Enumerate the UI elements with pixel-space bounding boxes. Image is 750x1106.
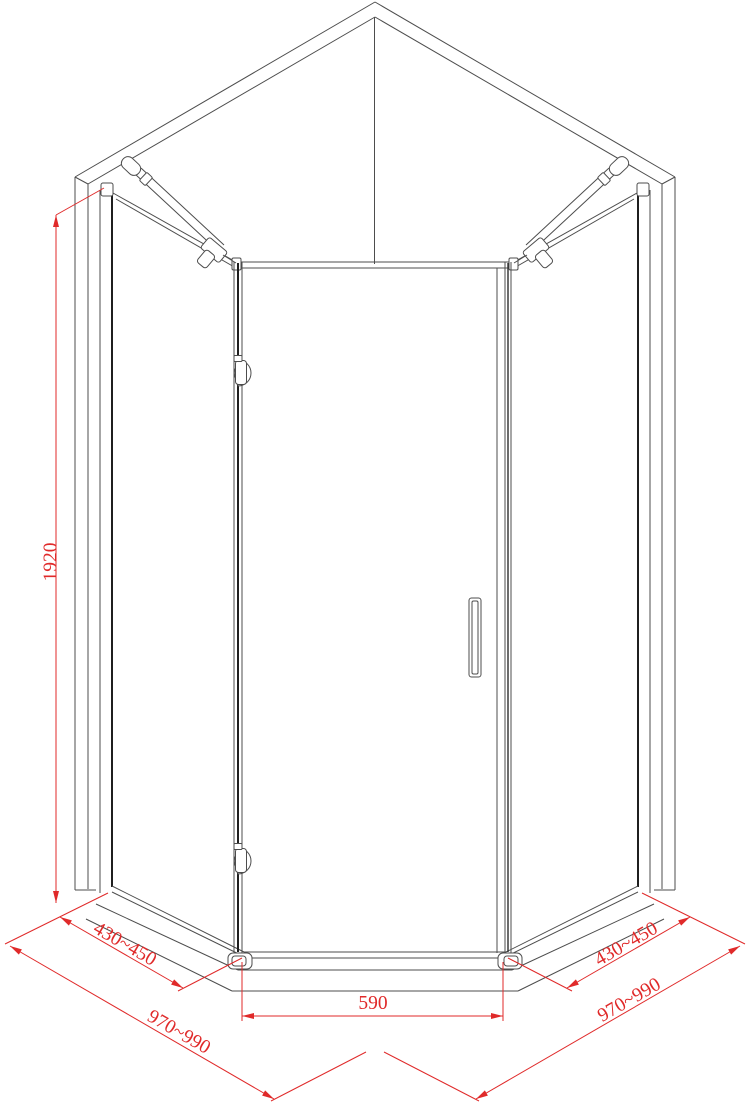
left-bar-end-cap: [119, 154, 143, 178]
right-glass-clamp-icon: [637, 183, 649, 196]
technical-drawing: 1920 430~450 970~990 590 430~450 970~990: [0, 0, 750, 1106]
right-bar-collar: [597, 172, 610, 186]
left-wall-profile: [75, 177, 112, 893]
left-support-bar: [119, 154, 236, 269]
door-hinge-top-icon: [234, 356, 251, 387]
dimension-label-door-width: 590: [358, 993, 387, 1014]
front-right-corner-bracket-inner: [504, 956, 518, 966]
drawing-canvas: 1920 430~450 970~990 590 430~450 970~990: [0, 0, 750, 1106]
rail-right-cap: [509, 258, 518, 270]
right-side-panel: [503, 183, 649, 958]
dimension-label-left-chamfer: 430~450: [90, 918, 160, 971]
dimension-label-right-chamfer: 430~450: [591, 918, 661, 971]
left-side-panel: [101, 183, 247, 958]
right-support-bar: [514, 154, 631, 269]
door-hinge-bottom-icon: [234, 844, 251, 875]
dimension-label-right-width: 970~990: [594, 974, 664, 1027]
shower-tray-base: [86, 904, 664, 991]
right-wall-profile: [638, 177, 675, 893]
front-left-corner-bracket-inner: [232, 956, 246, 966]
door-handle: [469, 598, 481, 677]
left-glass-clamp-icon: [101, 183, 113, 196]
dimension-height: 1920: [41, 188, 105, 903]
dimension-label-height: 1920: [41, 543, 62, 582]
left-bar-collar: [139, 172, 152, 186]
top-frame: [75, 2, 675, 264]
dimension-right-chamfer: 430~450: [508, 893, 745, 991]
dimension-label-left-width: 970~990: [144, 1006, 214, 1059]
dimension-left-chamfer: 430~450: [5, 893, 242, 991]
right-bar-end-cap: [607, 154, 631, 178]
rail-left-cap: [232, 258, 241, 270]
